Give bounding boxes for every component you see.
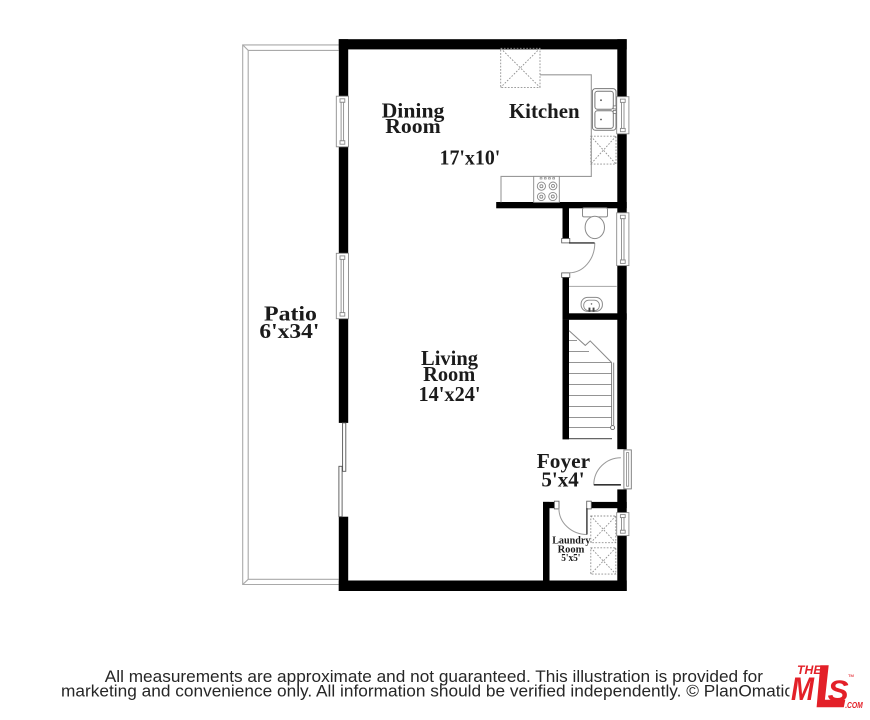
svg-text:M: M [791,671,815,707]
svg-text:17'x10': 17'x10' [440,146,501,170]
svg-text:14'x24': 14'x24' [418,382,480,406]
svg-text:Kitchen: Kitchen [509,99,580,123]
svg-text:Room: Room [385,114,441,138]
svg-text:™: ™ [848,674,855,681]
svg-text:5'x5': 5'x5' [561,553,580,564]
svg-text:marketing and convenience only: marketing and convenience only. All info… [61,681,794,700]
svg-text:5'x4': 5'x4' [541,468,584,492]
svg-text:.COM: .COM [845,700,863,710]
svg-text:6'x34': 6'x34' [259,319,319,343]
